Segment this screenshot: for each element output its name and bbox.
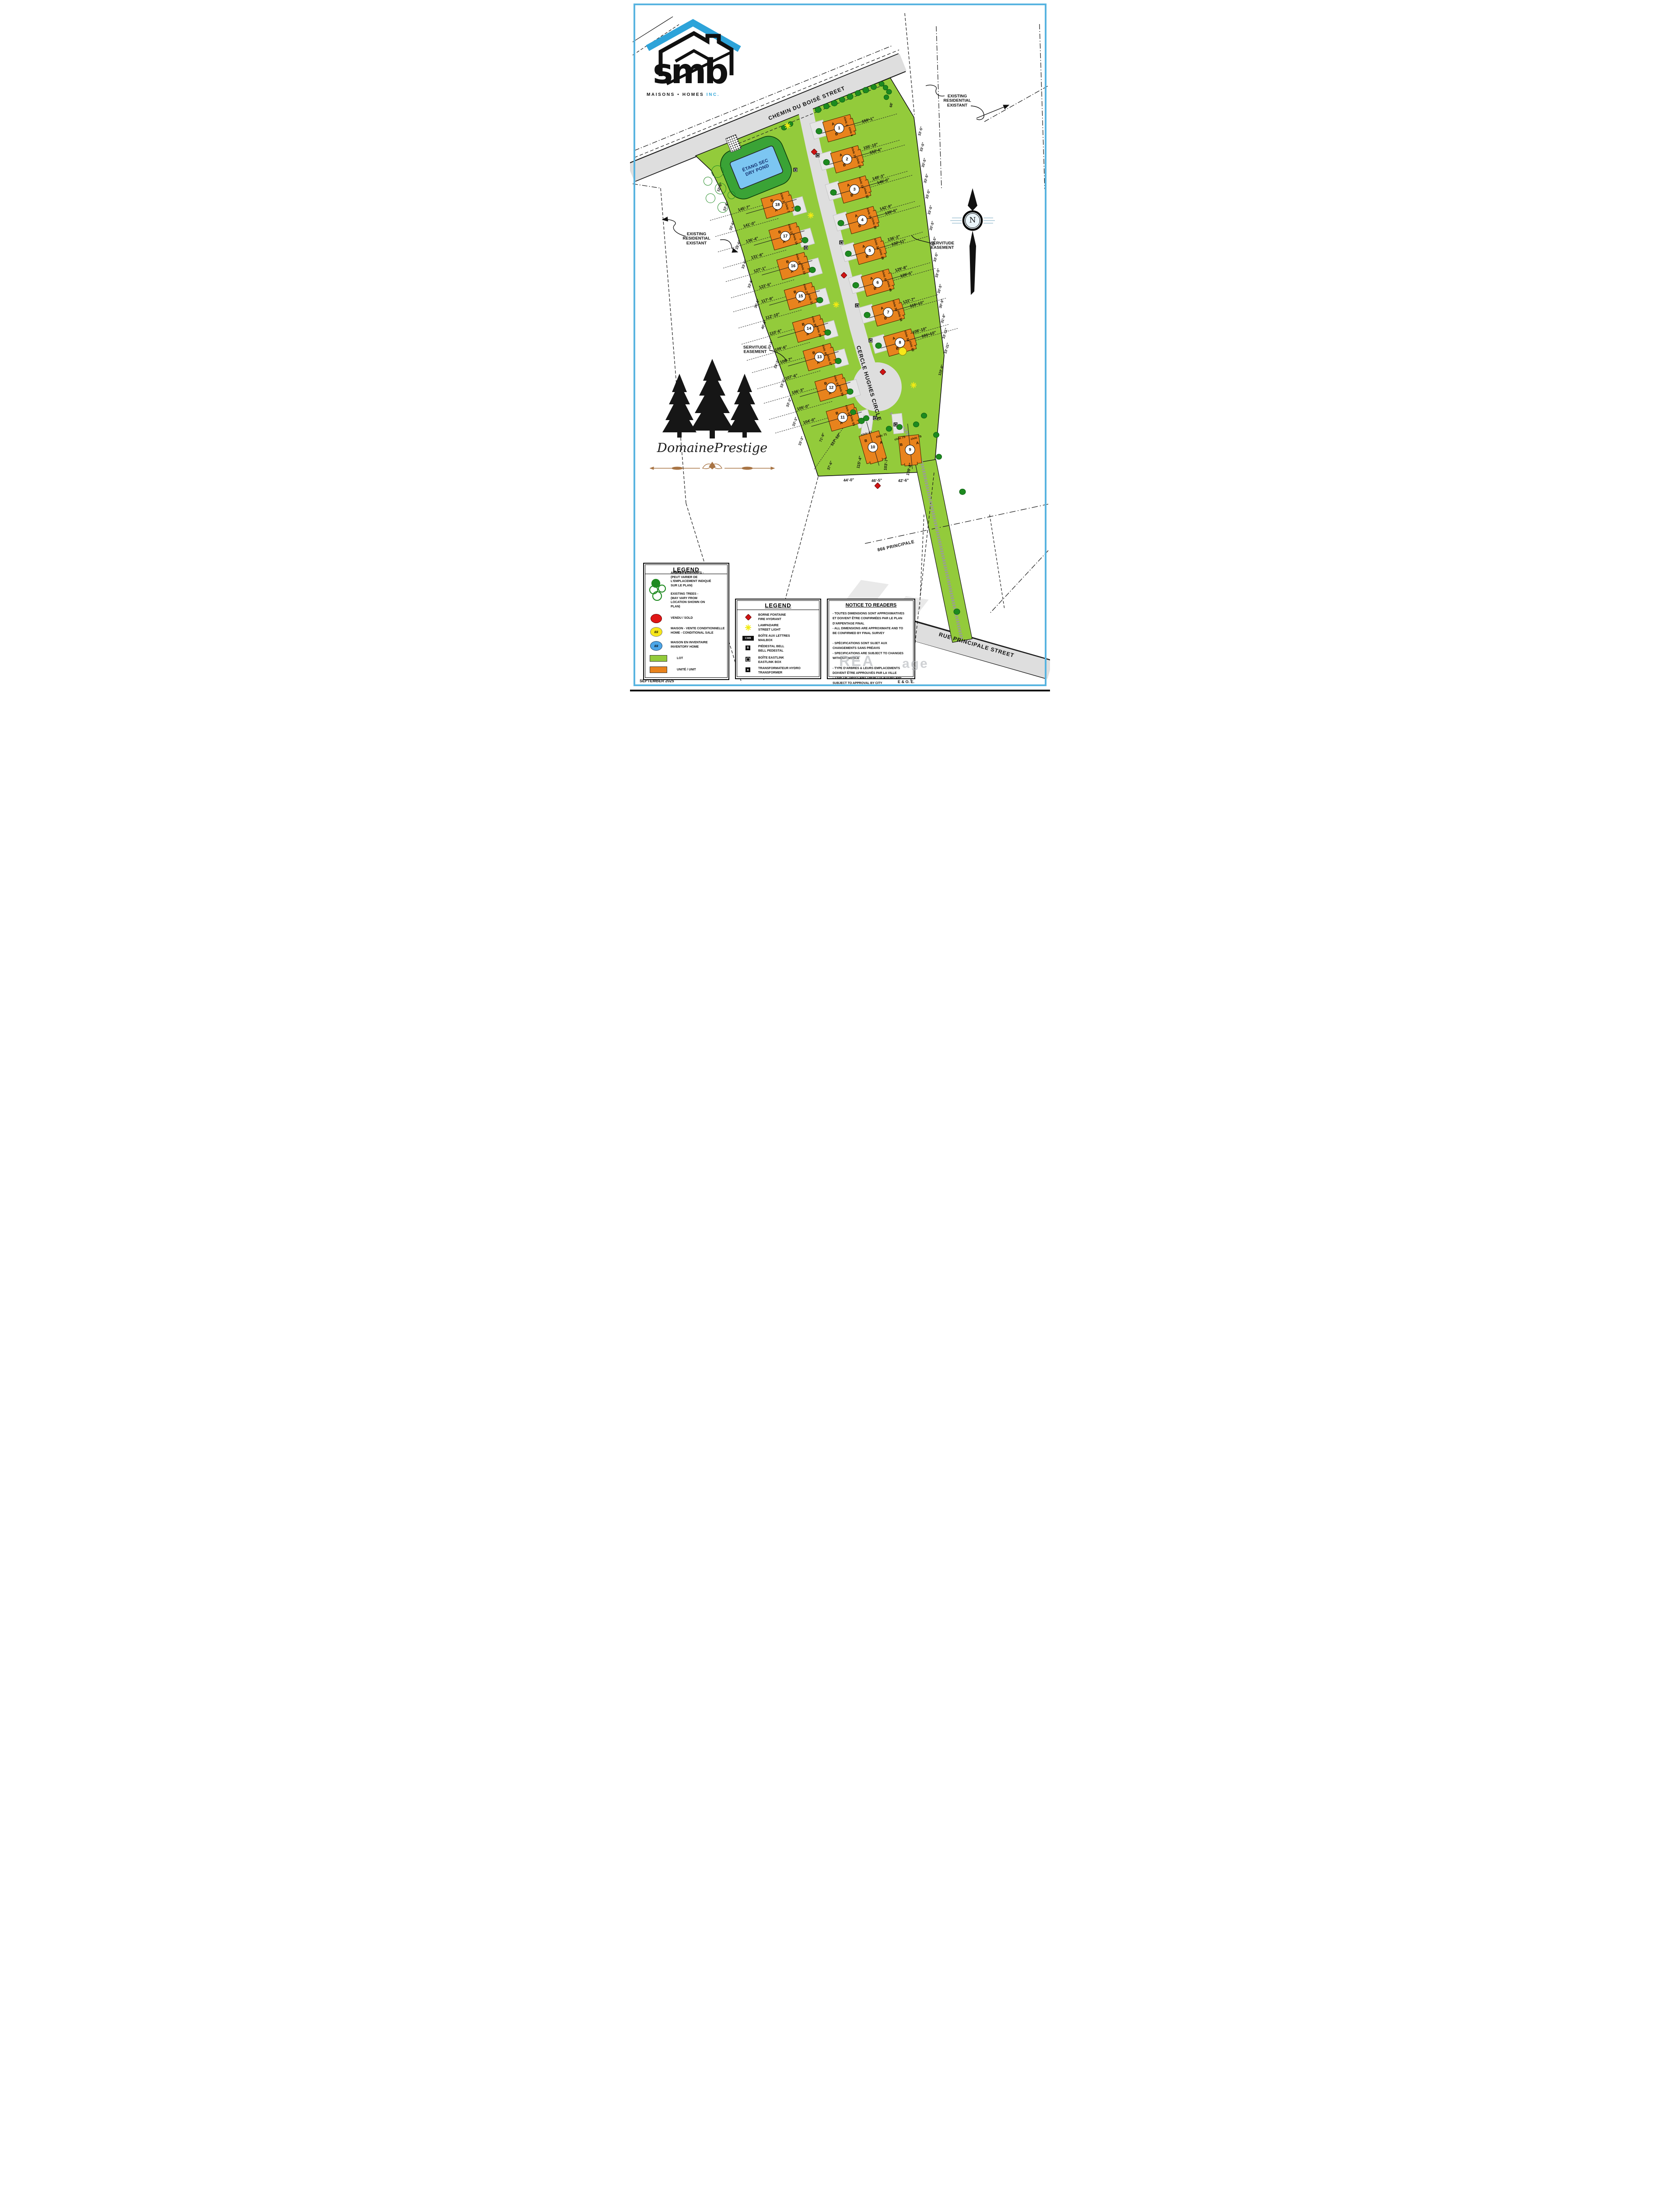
pine-trees-art	[647, 358, 778, 441]
fire-hydrant-icon	[879, 368, 886, 375]
frontage-label: 37'-6"	[827, 460, 834, 470]
legend-services-panel: LEGEND BORNE FONTAINE FIRE HYDRANT LAMPA…	[735, 599, 821, 679]
lot-number-badge: 8	[895, 338, 905, 348]
tree-icon	[863, 87, 869, 93]
frontage-label: 33'-6"	[741, 259, 748, 269]
frontage-label: 31'-8"	[941, 313, 947, 323]
brand-name: DomainePrestige	[647, 440, 778, 455]
frontage-label: 33'-5"	[924, 173, 930, 183]
bottom-edge-bar	[630, 690, 1050, 691]
unit-letter-label: B	[899, 442, 903, 447]
frontage-label: 119'-8"	[938, 364, 945, 376]
lot-number-badge: 14	[804, 324, 814, 334]
lot-number-badge: 12	[826, 383, 836, 393]
dimension-label: 110'-6"	[769, 328, 783, 336]
site-plan-page: civic 2civic 6AB1civic 10civic 14AB2civi…	[630, 0, 1050, 691]
lot-number-badge: 2	[842, 154, 852, 165]
legend-transformer: TRANSFORMATEUR HYDRO TRANSFORMER	[758, 666, 801, 675]
tree-icon	[936, 454, 942, 459]
tree-icon	[847, 94, 854, 100]
dimension-label: 117'-10"	[829, 432, 842, 447]
lot-number-badge: 15	[796, 291, 806, 302]
lot-number-badge: 5	[865, 246, 875, 256]
utility-box-icon	[855, 304, 859, 308]
annotation-label: SERVITUDE EASEMENT	[743, 346, 767, 355]
lot-number-badge: 1	[834, 123, 844, 133]
existing-trees-icon	[649, 578, 668, 601]
sold-icon	[651, 614, 662, 623]
frontage-label: 33'-3"	[786, 397, 793, 407]
lot-boundary-dash	[738, 310, 801, 328]
notice-body: - TOUTES DIMENSIONS SONT APPROXIMATIVES …	[833, 611, 911, 686]
street-light-icon	[910, 382, 917, 388]
lot-boundary-dash	[769, 401, 832, 420]
fire-hydrant-icon	[874, 482, 881, 489]
dimension-label: 115'-4"	[856, 456, 863, 469]
tree-icon	[886, 89, 892, 95]
frontage-label: 33'-5"	[921, 158, 928, 168]
bell-pedestal-icon: B	[745, 645, 750, 650]
tree-icon	[831, 100, 838, 106]
dimension-label: 107'-6"	[784, 373, 798, 381]
frontage-label: 33'-11"	[944, 342, 951, 354]
utility-box-icon	[894, 423, 898, 427]
unit-swatch	[650, 666, 667, 673]
logo-smb-text: smb	[653, 52, 728, 88]
dimension-label: 129'-8"	[894, 265, 908, 273]
tree-icon	[839, 97, 845, 102]
existing-tree-icon	[706, 193, 715, 203]
frontage-label: 33'-5"	[925, 189, 932, 199]
lot-number-badge: 9	[905, 445, 915, 455]
dimension-label: 126'-5"	[899, 270, 913, 278]
dimension-label: 109'-6"	[774, 344, 787, 352]
watermark-text: REA	[839, 653, 875, 670]
frontage-label: 33'-5"	[918, 126, 924, 136]
lot-number-badge: 7	[883, 308, 893, 318]
street-name-label: 866 PRINCIPALE	[877, 540, 915, 553]
legend-trees-en: EXISTING TREES - (MAY VARY FROM LOCATION…	[671, 592, 705, 609]
flourish-divider	[647, 459, 778, 475]
dimension-label: 108'-7"	[779, 357, 793, 365]
tree-icon	[886, 426, 892, 431]
utility-box-icon	[804, 246, 808, 250]
tree-icon	[921, 413, 927, 418]
utility-box-icon	[869, 339, 873, 343]
mailbox-icon: CMB	[742, 636, 754, 641]
notice-title: NOTICE TO READERS	[829, 601, 913, 609]
dimension-label: 106'-3"	[791, 387, 805, 395]
lot-boundary-dash	[723, 250, 786, 268]
transformer-icon: ▲	[745, 667, 750, 672]
street-light-icon	[833, 302, 839, 308]
legend-lot: LOT	[677, 656, 683, 661]
lot-swatch	[650, 655, 667, 662]
lot-number-badge: 11	[838, 413, 848, 423]
frontage-label: 71'-9"	[819, 432, 826, 442]
lot-number-badge: 10	[868, 442, 878, 452]
tree-icon	[884, 95, 889, 100]
frontage-label: 33'-3"	[792, 417, 799, 427]
legend-conditional: MAISON - VENTE CONDITIONNELLE HOME - CON…	[671, 627, 724, 635]
frontage-label: 33'-3"	[798, 436, 805, 446]
street-light-icon	[808, 212, 814, 218]
tree-icon	[815, 107, 822, 113]
domaine-prestige-brand: DomainePrestige	[647, 358, 778, 476]
utility-box-icon	[816, 154, 820, 158]
annotation-label: EXISTING RESIDENTIAL EXISTANT	[943, 94, 971, 108]
fire-hydrant-icon	[840, 272, 847, 279]
legend2-title: LEGEND	[737, 601, 819, 610]
frontage-label: 33'-5"	[933, 252, 940, 262]
dimension-label: 117'-9"	[761, 296, 774, 304]
dimension-label: 103'-7"	[883, 457, 889, 470]
street-light-icon	[784, 123, 791, 129]
existing-tree-icon	[703, 177, 712, 186]
watermark-text: age	[902, 656, 929, 671]
frontage-label: 33'-5"	[929, 221, 936, 231]
lot-boundary-dash	[715, 218, 778, 237]
inventory-home-icon: ##	[650, 641, 662, 651]
legend-symbols-panel: LEGEND ARBRES EXISTANTS - (PEUT VARIER D…	[643, 563, 729, 680]
frontage-label: 33'-5"	[920, 142, 926, 152]
dimension-label: 145'-7"	[737, 204, 751, 212]
plan-date: SEPTEMBER 2025	[640, 679, 674, 683]
legend-mailbox: BOÎTE AUX LETTRES MAILBOX	[758, 634, 790, 642]
dimension-label: 159'-1"	[861, 116, 875, 124]
utility-box-icon	[794, 168, 798, 172]
lot-number-badge: 6	[873, 278, 883, 288]
dimension-label: 122'-5"	[758, 282, 772, 290]
legend-inventory: MAISON EN INVENTAIRE INVENTORY HOME	[671, 641, 708, 649]
dimension-label: 105'-0"	[796, 403, 810, 411]
unit-letter-label: B	[864, 438, 867, 443]
smb-logo: smb MAISONS • HOMES INC.	[641, 11, 746, 98]
legend-bell: PIÉDESTAL BELL BELL PEDESTAL	[758, 645, 784, 653]
unit-letter-label: A	[916, 441, 919, 445]
frontage-label: 68'	[889, 102, 894, 108]
tree-icon	[855, 90, 861, 96]
tree-icon	[933, 432, 939, 438]
logo-tagline: MAISONS • HOMES INC.	[647, 92, 720, 97]
tree-icon	[871, 84, 877, 90]
pond-label: ÉTANG SEC DRY POND	[742, 158, 771, 178]
frontage-label: 33'-5"	[935, 268, 941, 278]
lot-number-badge: 4	[857, 215, 868, 225]
frontage-label: 33'-5"	[927, 205, 934, 215]
unit-letter-label: A	[879, 440, 882, 445]
legend-eastlink: BOÎTE EASTLINK EASTLINK BOX	[758, 656, 784, 664]
dimension-label: 141'-0"	[742, 221, 756, 228]
tree-icon	[823, 103, 829, 109]
legend-hydrant: BORNE FONTAINE FIRE HYDRANT	[758, 613, 786, 621]
dimension-label: 104'-0"	[802, 417, 816, 425]
lot-number-badge: 3	[850, 185, 860, 195]
street-name-label: CERCLE HUGHES CIRCLE	[855, 345, 883, 421]
existing-tree-icon	[728, 191, 735, 199]
lot-number-badge: 18	[773, 200, 783, 210]
lot-number-badge: 13	[815, 352, 825, 362]
frontage-label: 33'-3"	[780, 378, 787, 388]
errors-omissions-note: E & O. E.	[898, 680, 914, 684]
tree-icon	[959, 489, 966, 495]
dimension-label: 112'-10"	[765, 312, 780, 320]
lot-boundary-dash	[731, 280, 794, 298]
lot-number-badge: 16	[788, 261, 798, 271]
dimension-label: 42'-6"	[898, 478, 909, 483]
dimension-label: 44'-0"	[843, 477, 854, 482]
street-name-label: RUE PRINCIPALE STREET	[938, 631, 1015, 659]
existing-tree-icon	[711, 165, 724, 178]
legend-unit: UNITÉ / UNIT	[677, 668, 696, 672]
utility-box-icon	[873, 416, 877, 420]
eastlink-box-icon	[745, 657, 750, 662]
legend-light: LAMPADAIRE STREET LIGHT	[758, 624, 780, 632]
tree-icon	[954, 609, 960, 615]
legend-trees-fr: ARBRES EXISTANTS - (PEUT VARIER DE L'EMP…	[671, 571, 711, 588]
lot-number-badge: 17	[780, 231, 791, 242]
frontage-label: 33'-3"	[767, 340, 774, 350]
frontage-label: 33'-11"	[942, 327, 949, 339]
legend-sold: VENDU / SOLD	[671, 616, 693, 621]
fire-hydrant-icon	[745, 614, 752, 621]
compass-north-letter: N	[969, 216, 976, 224]
annotation-label: EXISTING RESIDENTIAL EXISTANT	[682, 232, 710, 245]
dimension-label: 131'-8"	[750, 252, 764, 260]
conditional-sale-icon: ##	[650, 627, 662, 637]
tree-icon	[913, 421, 919, 427]
frontage-label: 33'-5"	[937, 284, 944, 294]
dimension-label: 127'-1"	[753, 266, 766, 273]
utility-box-icon	[840, 241, 843, 245]
conditional-sale-dot	[899, 347, 907, 356]
frontage-label: 33'-6"	[729, 221, 736, 231]
dimension-label: 136'-4"	[745, 236, 759, 244]
dimension-label: 46'-5"	[871, 478, 882, 483]
frontage-label: 33'-6"	[747, 278, 754, 288]
